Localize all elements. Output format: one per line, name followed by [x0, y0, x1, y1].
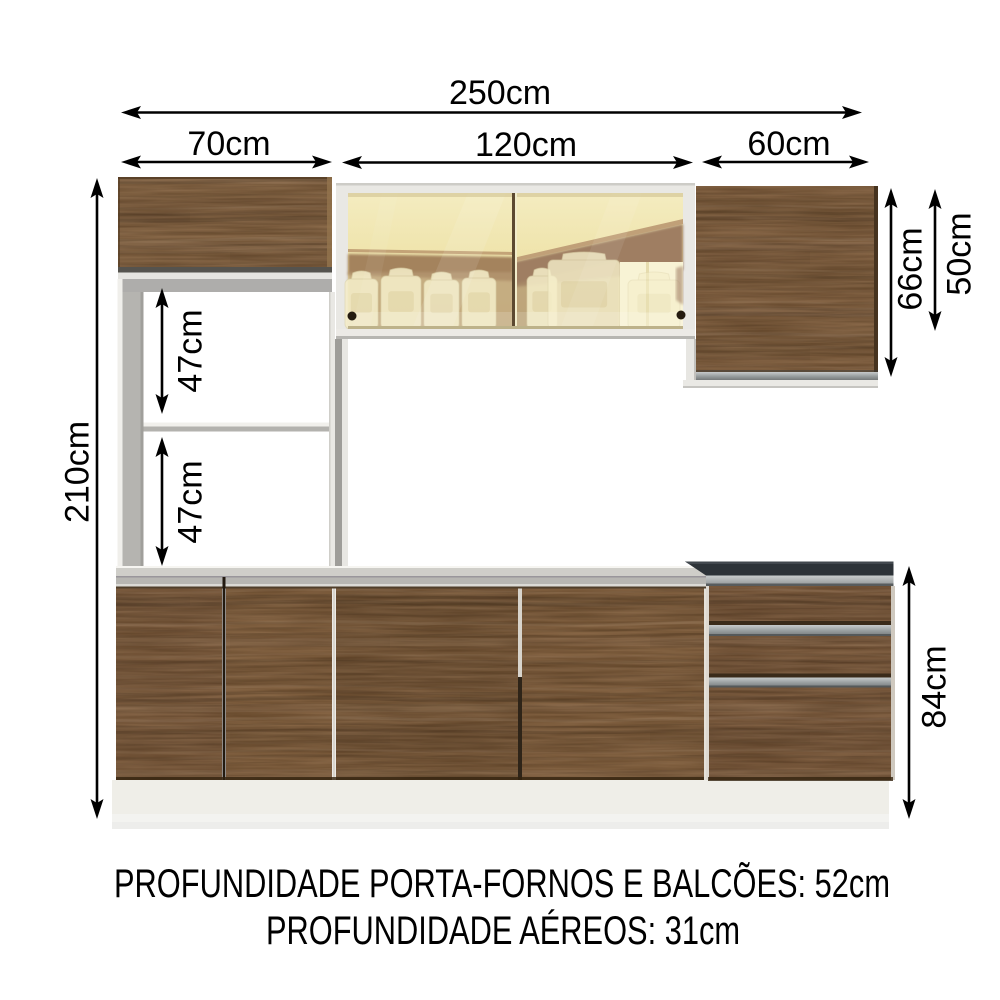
- svg-text:250cm: 250cm: [449, 74, 551, 112]
- svg-text:PROFUNDIDADE AÉREOS: 31cm: PROFUNDIDADE AÉREOS: 31cm: [266, 908, 740, 953]
- svg-text:60cm: 60cm: [747, 125, 830, 163]
- svg-text:84cm: 84cm: [916, 645, 954, 728]
- svg-text:50cm: 50cm: [941, 212, 979, 295]
- svg-text:70cm: 70cm: [187, 125, 270, 163]
- svg-text:PROFUNDIDADE PORTA-FORNOS E BA: PROFUNDIDADE PORTA-FORNOS E BALCÕES: 52c…: [114, 861, 890, 906]
- svg-text:120cm: 120cm: [475, 126, 577, 164]
- svg-text:66cm: 66cm: [892, 227, 930, 310]
- svg-text:47cm: 47cm: [172, 460, 210, 543]
- svg-text:210cm: 210cm: [59, 421, 97, 523]
- svg-text:47cm: 47cm: [172, 309, 210, 392]
